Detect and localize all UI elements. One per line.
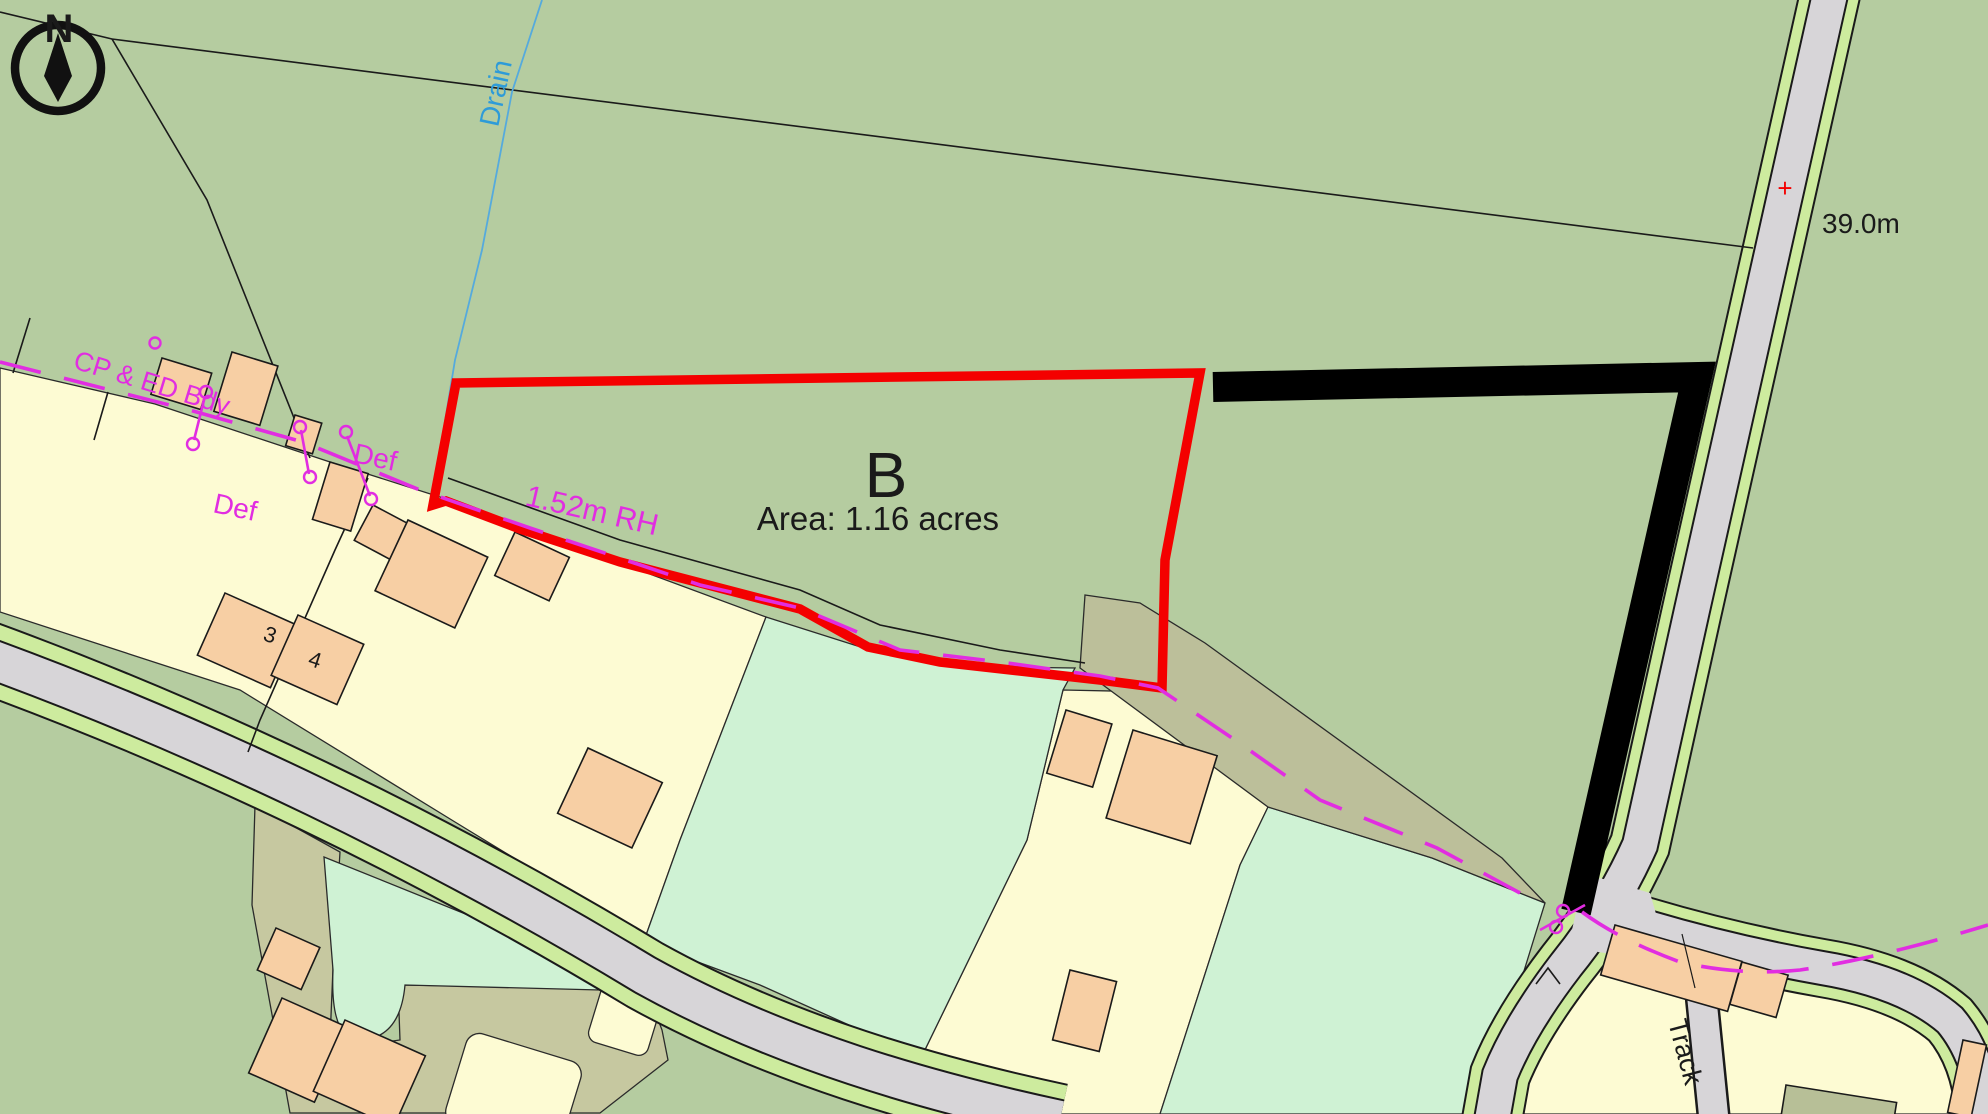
benchmark-cross: + [1777,173,1792,203]
plot-b-area-label: Area: 1.16 acres [757,500,999,537]
compass-north-label: N [45,7,74,51]
spot-height-label: 39.0m [1822,208,1900,239]
site-plan-map: N Drain CP & ED Bdy Def Def 1.52m RH B A… [0,0,1988,1114]
map-canvas: N Drain CP & ED Bdy Def Def 1.52m RH B A… [0,0,1988,1114]
